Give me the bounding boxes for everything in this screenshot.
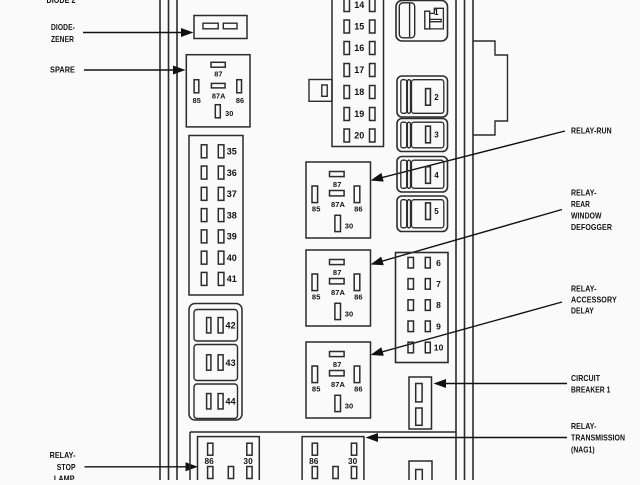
svg-text:14: 14 <box>354 0 364 10</box>
svg-text:30: 30 <box>243 456 253 466</box>
svg-text:REAR: REAR <box>571 199 590 209</box>
svg-text:DEFOGGER: DEFOGGER <box>571 222 612 232</box>
svg-text:39: 39 <box>227 232 237 242</box>
svg-text:10: 10 <box>434 343 444 353</box>
svg-text:DIODE 2: DIODE 2 <box>47 0 76 5</box>
svg-text:DELAY: DELAY <box>571 306 594 316</box>
svg-text:ZENER: ZENER <box>51 34 74 44</box>
svg-text:16: 16 <box>354 43 364 53</box>
svg-text:SPARE: SPARE <box>50 65 75 75</box>
svg-text:7: 7 <box>436 279 441 289</box>
svg-text:1: 1 <box>434 8 439 17</box>
svg-text:RELAY-: RELAY- <box>571 421 597 431</box>
svg-text:RELAY-: RELAY- <box>571 283 597 293</box>
svg-text:38: 38 <box>227 210 237 220</box>
svg-text:42: 42 <box>225 321 235 331</box>
svg-text:86: 86 <box>204 456 214 466</box>
svg-text:85: 85 <box>312 293 321 302</box>
svg-text:LAMP: LAMP <box>54 474 75 481</box>
svg-text:30: 30 <box>348 456 358 466</box>
svg-text:43: 43 <box>225 358 235 368</box>
svg-text:8: 8 <box>436 300 441 310</box>
svg-text:87A: 87A <box>212 91 226 100</box>
svg-text:3: 3 <box>434 131 439 140</box>
svg-text:TRANSMISSION: TRANSMISSION <box>571 432 625 442</box>
svg-text:9: 9 <box>436 321 441 331</box>
svg-text:30: 30 <box>345 310 354 319</box>
svg-text:86: 86 <box>309 456 319 466</box>
svg-text:85: 85 <box>312 205 321 214</box>
svg-text:35: 35 <box>227 147 237 157</box>
svg-text:DIODE-: DIODE- <box>51 22 75 32</box>
svg-text:RELAY-: RELAY- <box>571 187 597 197</box>
svg-text:CIRCUIT: CIRCUIT <box>571 373 601 383</box>
svg-text:87A: 87A <box>331 200 346 209</box>
svg-text:41: 41 <box>227 274 237 284</box>
svg-text:85: 85 <box>193 96 201 105</box>
svg-text:19: 19 <box>354 109 364 119</box>
svg-text:BREAKER 1: BREAKER 1 <box>571 385 611 395</box>
svg-text:86: 86 <box>236 96 244 105</box>
svg-text:30: 30 <box>345 222 354 231</box>
svg-text:RELAY-: RELAY- <box>50 450 76 460</box>
svg-text:5: 5 <box>434 207 439 216</box>
svg-text:87: 87 <box>333 180 342 189</box>
svg-text:18: 18 <box>354 87 364 97</box>
svg-text:15: 15 <box>354 22 364 32</box>
svg-text:87: 87 <box>333 268 342 277</box>
svg-text:30: 30 <box>345 402 354 411</box>
svg-text:STOP: STOP <box>57 462 76 472</box>
svg-text:36: 36 <box>227 168 237 178</box>
svg-text:85: 85 <box>312 385 321 394</box>
svg-text:30: 30 <box>225 109 233 118</box>
svg-text:2: 2 <box>434 93 439 102</box>
svg-text:20: 20 <box>354 131 364 141</box>
svg-text:4: 4 <box>434 171 439 180</box>
svg-text:ACCESSORY: ACCESSORY <box>571 295 617 305</box>
svg-text:87A: 87A <box>331 380 346 389</box>
svg-text:RELAY-RUN: RELAY-RUN <box>571 126 612 136</box>
svg-text:87A: 87A <box>331 288 346 297</box>
svg-text:17: 17 <box>354 65 364 75</box>
svg-text:87: 87 <box>214 70 222 79</box>
svg-text:37: 37 <box>227 189 237 199</box>
svg-text:44: 44 <box>225 397 235 407</box>
svg-text:87: 87 <box>333 360 342 369</box>
svg-text:86: 86 <box>354 205 363 214</box>
svg-text:86: 86 <box>354 385 363 394</box>
svg-text:86: 86 <box>354 293 363 302</box>
svg-text:(NAG1): (NAG1) <box>571 445 595 455</box>
svg-text:6: 6 <box>436 258 441 268</box>
svg-text:40: 40 <box>227 253 237 263</box>
svg-text:WINDOW: WINDOW <box>571 211 602 221</box>
